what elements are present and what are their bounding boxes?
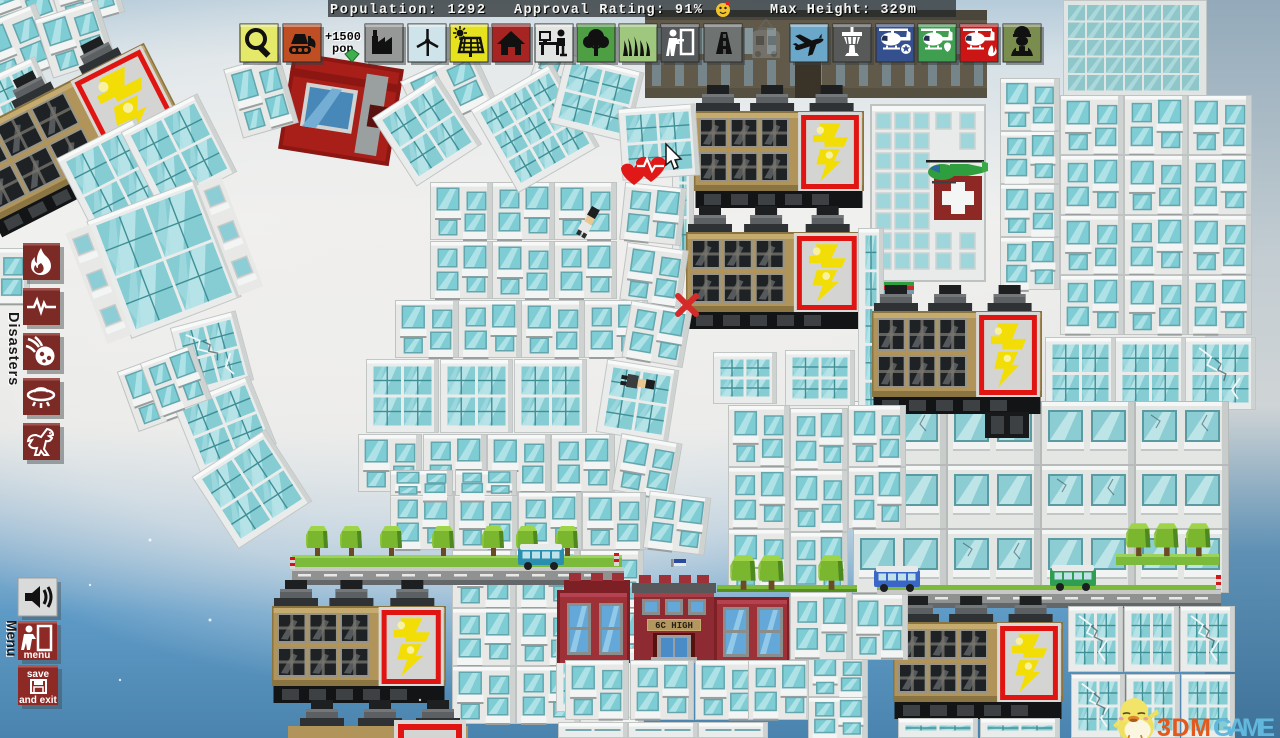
svg-text:Disasters: Disasters: [5, 312, 21, 386]
svg-text:Menu: Menu: [4, 620, 20, 657]
svg-text:menu: menu: [24, 650, 51, 661]
svg-text:and exit: and exit: [19, 695, 57, 706]
svg-text:3DM: 3DM: [1157, 714, 1211, 738]
svg-text:Max Height: 329m: Max Height: 329m: [770, 3, 916, 18]
svg-text:Approval Rating: 91%: Approval Rating: 91%: [514, 3, 703, 18]
svg-text:save: save: [27, 669, 50, 680]
svg-text:6C HIGH: 6C HIGH: [655, 621, 693, 631]
svg-text:GAME: GAME: [1213, 714, 1275, 738]
svg-text:Population: 1292: Population: 1292: [330, 3, 485, 18]
